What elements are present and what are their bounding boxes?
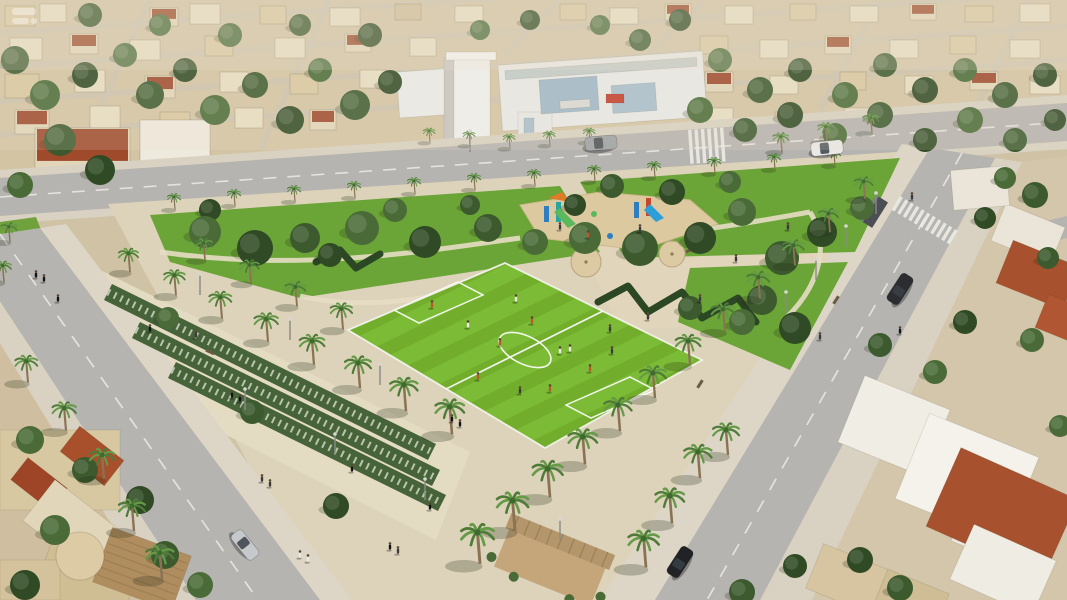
person-shadow	[816, 340, 821, 342]
person-body	[477, 375, 479, 380]
person-head	[195, 330, 198, 333]
person-body	[499, 341, 501, 346]
tree-highlight	[18, 429, 33, 444]
palm-crown	[791, 243, 795, 247]
palm-shadow	[521, 184, 536, 189]
light-head	[784, 290, 788, 294]
palm-shadow	[671, 475, 703, 486]
person-body	[559, 225, 561, 230]
person-shadow	[566, 352, 571, 354]
palm-shadow	[845, 197, 866, 204]
person-head	[819, 332, 822, 335]
person-shadow	[556, 354, 561, 356]
person-body	[787, 225, 789, 230]
person-shadow	[732, 262, 737, 264]
play-structure	[634, 202, 639, 218]
palm-shadow	[773, 263, 797, 271]
light-head	[558, 517, 562, 521]
tree-highlight	[13, 573, 30, 590]
tree-highlight	[159, 309, 171, 321]
palm-crown	[339, 307, 343, 311]
tree-highlight	[412, 229, 430, 247]
person-shadow	[236, 402, 241, 404]
tree-highlight	[661, 182, 675, 196]
palm-crown	[127, 252, 131, 256]
person-shadow	[512, 302, 517, 304]
palm-crown	[202, 241, 205, 244]
palm-crown	[172, 273, 176, 277]
person-head	[149, 324, 152, 327]
palm-shadow	[332, 385, 362, 395]
palm-shadow	[614, 564, 649, 576]
aerial-park-render-canvas	[0, 0, 1067, 600]
person-shadow	[456, 427, 461, 429]
tree-highlight	[782, 315, 800, 333]
person-body	[467, 323, 469, 328]
palm-shadow	[198, 316, 224, 325]
person-shadow	[496, 346, 501, 348]
play-structure	[591, 211, 597, 217]
palm-crown	[756, 275, 760, 279]
person-head	[515, 294, 518, 297]
palm-crown	[593, 168, 596, 171]
person-body	[531, 319, 533, 324]
palm-crown	[862, 180, 866, 184]
person-body	[431, 303, 433, 308]
light-head	[814, 257, 818, 261]
person-body	[587, 233, 589, 238]
person-body	[43, 277, 45, 282]
person-head	[269, 479, 272, 482]
tree-highlight	[293, 226, 310, 243]
person-body	[261, 477, 263, 482]
person-head	[431, 300, 434, 303]
person-shadow	[228, 398, 233, 400]
person-shadow	[696, 302, 701, 304]
tree-highlight	[785, 556, 798, 569]
light-head	[378, 362, 382, 366]
palm-shadow	[421, 431, 454, 442]
person-shadow	[258, 482, 263, 484]
person-body	[195, 333, 197, 338]
person-shadow	[296, 558, 301, 560]
tree-highlight	[731, 312, 745, 326]
palm-crown	[827, 212, 831, 216]
person-shadow	[586, 372, 591, 374]
canopy-pole	[670, 252, 673, 255]
person-body	[699, 297, 701, 302]
palm-shadow	[275, 304, 298, 312]
tree-highlight	[9, 175, 23, 189]
palm-crown	[7, 225, 10, 228]
tree-highlight	[1022, 330, 1035, 343]
tree-highlight	[242, 402, 255, 415]
play-structure	[607, 233, 613, 239]
person-head	[559, 222, 562, 225]
light-head	[844, 224, 848, 228]
person-body	[429, 505, 431, 510]
palm-shadow	[445, 560, 483, 573]
person-body	[559, 349, 561, 354]
tree-highlight	[955, 312, 968, 325]
person-shadow	[304, 562, 309, 564]
person-body	[351, 467, 353, 472]
tree-highlight	[43, 518, 60, 535]
person-body	[911, 195, 913, 200]
person-body	[299, 553, 301, 558]
person-head	[587, 230, 590, 233]
palm-crown	[218, 295, 222, 299]
person-shadow	[40, 282, 45, 284]
person-head	[647, 312, 650, 315]
person-head	[397, 546, 400, 549]
person-shadow	[428, 308, 433, 310]
person-head	[735, 254, 738, 257]
person-shadow	[584, 238, 589, 240]
person-shadow	[908, 200, 913, 202]
palm-crown	[773, 156, 776, 159]
tree-highlight	[88, 158, 105, 175]
person-body	[639, 227, 641, 232]
person-head	[43, 274, 46, 277]
person-head	[611, 346, 614, 349]
person-body	[569, 347, 571, 352]
tree-highlight	[189, 575, 203, 589]
person-body	[389, 545, 391, 550]
tree-highlight	[870, 335, 883, 348]
person-body	[519, 389, 521, 394]
tree-highlight	[325, 496, 339, 510]
palm-crown	[310, 339, 315, 344]
person-head	[549, 384, 552, 387]
palm-crown	[510, 498, 516, 504]
person-body	[459, 422, 461, 427]
palm-shadow	[700, 452, 730, 462]
person-shadow	[394, 554, 399, 556]
palm-crown	[353, 184, 356, 187]
person-head	[699, 294, 702, 297]
tree-highlight	[625, 234, 645, 254]
person-shadow	[644, 320, 649, 322]
person-head	[477, 372, 480, 375]
tree-highlight	[524, 232, 538, 246]
person-head	[899, 326, 902, 329]
tree-highlight	[240, 234, 260, 254]
person-shadow	[528, 324, 533, 326]
person-body	[611, 349, 613, 354]
palm-crown	[157, 550, 162, 555]
person-shadow	[474, 380, 479, 382]
palm-shadow	[320, 327, 345, 335]
palm-crown	[667, 493, 673, 499]
palm-shadow	[161, 208, 176, 213]
person-head	[609, 324, 612, 327]
person-body	[549, 387, 551, 392]
person-shadow	[636, 232, 641, 234]
person-shadow	[146, 332, 151, 334]
tree-highlight	[731, 582, 745, 596]
palm-crown	[713, 160, 716, 163]
palm-shadow	[287, 362, 316, 372]
palm-shadow	[663, 362, 692, 372]
palm-shadow	[231, 281, 253, 288]
tree-highlight	[687, 225, 705, 243]
person-head	[389, 542, 392, 545]
person-body	[819, 335, 821, 340]
palm-crown	[545, 466, 551, 472]
person-shadow	[784, 230, 789, 232]
tree-highlight	[680, 298, 693, 311]
palm-crown	[24, 359, 28, 363]
person-body	[451, 417, 453, 422]
person-shadow	[386, 550, 391, 552]
palm-crown	[233, 192, 236, 195]
palm-crown	[293, 285, 297, 289]
palm-shadow	[761, 168, 776, 173]
person-shadow	[266, 487, 271, 489]
palm-shadow	[700, 329, 727, 338]
person-head	[519, 386, 522, 389]
person-head	[531, 316, 534, 319]
palm-crown	[651, 371, 656, 376]
palm-shadow	[243, 339, 270, 348]
person-head	[299, 550, 302, 553]
tree-highlight	[925, 362, 938, 375]
palm-crown	[721, 307, 726, 312]
palm-crown	[615, 402, 620, 407]
light-head	[333, 432, 337, 436]
person-head	[589, 364, 592, 367]
person-body	[589, 367, 591, 372]
aerial-park-render	[0, 0, 1067, 600]
tree-highlight	[320, 245, 333, 258]
person-body	[397, 549, 399, 554]
palm-crown	[474, 529, 480, 535]
palm-crown	[695, 449, 700, 454]
tree-highlight	[201, 201, 213, 213]
tree-highlight	[462, 197, 473, 208]
person-body	[735, 257, 737, 262]
person-head	[451, 414, 454, 417]
person-body	[57, 297, 59, 302]
palm-crown	[100, 453, 105, 458]
play-structure	[544, 206, 549, 222]
tree-highlight	[476, 217, 491, 232]
palm-shadow	[809, 230, 832, 238]
palm-shadow	[736, 296, 762, 305]
light-head	[198, 272, 202, 276]
palm-crown	[447, 404, 453, 410]
tree-highlight	[1051, 417, 1063, 429]
person-shadow	[464, 328, 469, 330]
person-shadow	[606, 332, 611, 334]
person-head	[639, 224, 642, 227]
tree-highlight	[976, 209, 988, 221]
palm-shadow	[186, 258, 206, 265]
person-body	[515, 297, 517, 302]
person-shadow	[448, 422, 453, 424]
palm-shadow	[281, 200, 296, 205]
person-body	[149, 327, 151, 332]
person-head	[499, 338, 502, 341]
tree-highlight	[192, 219, 210, 237]
light-head	[288, 317, 292, 321]
person-head	[569, 344, 572, 347]
palm-shadow	[581, 180, 596, 185]
palm-crown	[356, 361, 361, 366]
person-head	[467, 320, 470, 323]
palm-crown	[264, 317, 269, 322]
person-shadow	[32, 278, 37, 280]
tree-highlight	[74, 460, 88, 474]
tree-highlight	[730, 201, 745, 216]
person-head	[57, 294, 60, 297]
tree-highlight	[566, 196, 578, 208]
person-head	[911, 192, 914, 195]
light-head	[874, 191, 878, 195]
person-head	[261, 474, 264, 477]
palm-crown	[580, 434, 586, 440]
person-head	[351, 464, 354, 467]
palm-crown	[293, 188, 296, 191]
person-body	[269, 482, 271, 487]
person-head	[787, 222, 790, 225]
palm-shadow	[701, 172, 716, 177]
tree-highlight	[1039, 249, 1051, 261]
palm-shadow	[221, 204, 236, 209]
person-shadow	[546, 392, 551, 394]
palm-crown	[686, 339, 691, 344]
palm-shadow	[133, 576, 165, 587]
palm-crown	[62, 406, 66, 411]
person-shadow	[608, 354, 613, 356]
person-body	[307, 557, 309, 562]
palm-shadow	[341, 196, 356, 201]
distance-haze	[0, 0, 1067, 70]
palm-crown	[401, 382, 406, 387]
tree-highlight	[1024, 185, 1038, 199]
person-shadow	[192, 338, 197, 340]
person-head	[239, 394, 242, 397]
tree-highlight	[572, 225, 590, 243]
tree-highlight	[849, 550, 863, 564]
person-shadow	[556, 230, 561, 232]
person-shadow	[54, 302, 59, 304]
palm-crown	[473, 176, 476, 179]
palm-shadow	[641, 176, 656, 181]
palm-crown	[248, 263, 252, 267]
palm-shadow	[77, 476, 106, 486]
canopy-pole	[584, 260, 587, 263]
person-head	[307, 554, 310, 557]
person-body	[647, 315, 649, 320]
palm-shadow	[106, 528, 136, 538]
person-head	[231, 390, 234, 393]
person-body	[609, 327, 611, 332]
palm-shadow	[154, 293, 178, 301]
palm-crown	[653, 164, 656, 167]
tree-highlight	[889, 578, 903, 592]
person-shadow	[348, 472, 353, 474]
palm-crown	[413, 180, 416, 183]
watermark-dot	[31, 18, 37, 24]
person-body	[239, 397, 241, 402]
tree-highlight	[996, 169, 1008, 181]
palm-shadow	[4, 380, 30, 389]
light-head	[243, 387, 247, 391]
palm-crown	[1, 264, 4, 267]
light-head	[423, 477, 427, 481]
palm-shadow	[377, 408, 409, 419]
tree-highlight	[348, 214, 367, 233]
person-body	[899, 329, 901, 334]
palm-crown	[533, 172, 536, 175]
person-body	[231, 393, 233, 398]
palm-shadow	[821, 164, 836, 169]
watermark-bar	[12, 8, 36, 15]
palm-crown	[130, 504, 135, 509]
person-head	[559, 346, 562, 349]
tree-highlight	[602, 176, 615, 189]
palm-crown	[173, 196, 176, 199]
palm-crown	[724, 428, 729, 433]
palm-shadow	[401, 192, 416, 197]
person-shadow	[896, 334, 901, 336]
palm-shadow	[41, 428, 68, 437]
person-shadow	[516, 394, 521, 396]
palm-shadow	[109, 270, 132, 278]
person-body	[35, 273, 37, 278]
tree-highlight	[768, 244, 787, 263]
person-head	[459, 419, 462, 422]
person-shadow	[426, 510, 431, 512]
person-head	[35, 270, 38, 273]
palm-shadow	[461, 188, 476, 193]
tree-highlight	[385, 200, 398, 213]
watermark-bar	[12, 18, 29, 24]
person-head	[429, 502, 432, 505]
tree-highlight	[721, 173, 733, 185]
palm-crown	[641, 536, 647, 542]
palm-shadow	[641, 520, 674, 531]
